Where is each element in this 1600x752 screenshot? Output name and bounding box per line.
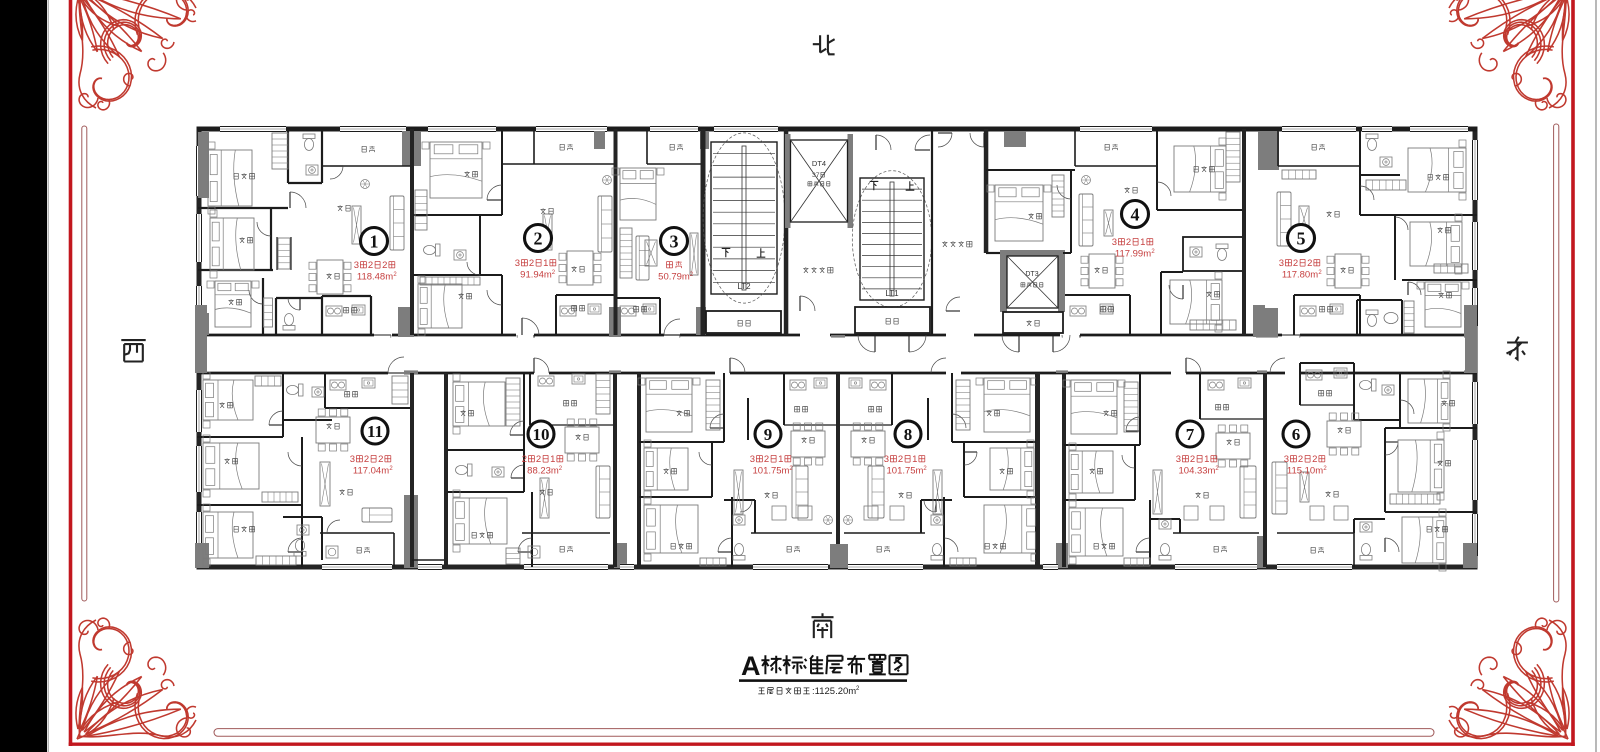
svg-text:1: 1 (1140, 237, 1145, 248)
svg-text:2: 2 (764, 454, 769, 465)
svg-text:104.33m: 104.33m (1179, 466, 1216, 477)
svg-text:11: 11 (367, 422, 383, 441)
svg-text:2: 2 (536, 454, 541, 465)
svg-text::1125.20m: :1125.20m (812, 686, 856, 697)
svg-text:3: 3 (670, 232, 679, 252)
svg-text:9: 9 (764, 425, 773, 444)
svg-text:3: 3 (884, 454, 889, 465)
svg-text:1: 1 (912, 454, 917, 465)
svg-text:88.23m: 88.23m (527, 466, 559, 477)
svg-text:2: 2 (529, 258, 534, 269)
svg-text:1: 1 (550, 454, 555, 465)
svg-text:A: A (741, 651, 761, 681)
svg-text:2: 2 (364, 454, 369, 465)
svg-text:1: 1 (543, 258, 548, 269)
svg-text:2: 2 (898, 454, 903, 465)
svg-text:3: 3 (1279, 258, 1284, 269)
svg-text:2: 2 (1312, 454, 1317, 465)
svg-text:117.99m: 117.99m (1115, 249, 1151, 260)
svg-text:5: 5 (1297, 229, 1306, 249)
svg-text:10: 10 (533, 425, 550, 444)
svg-text:2: 2 (1293, 258, 1298, 269)
svg-text:1: 1 (778, 454, 783, 465)
svg-text:DT4: DT4 (812, 159, 826, 168)
svg-text:1: 1 (370, 232, 379, 252)
svg-text:2: 2 (1190, 454, 1195, 465)
svg-text:117.04m: 117.04m (353, 466, 389, 477)
svg-text:101.75m: 101.75m (753, 466, 790, 477)
svg-text:3: 3 (515, 258, 520, 269)
svg-text:2: 2 (1126, 237, 1131, 248)
svg-text:3: 3 (350, 454, 355, 465)
svg-text:101.75m: 101.75m (887, 466, 924, 477)
svg-text:3: 3 (1112, 237, 1117, 248)
svg-text:3: 3 (1284, 454, 1289, 465)
svg-text:4: 4 (1131, 205, 1140, 225)
svg-text:LT1: LT1 (885, 289, 899, 298)
svg-text:91.94m: 91.94m (520, 270, 552, 281)
svg-text:6: 6 (1292, 425, 1301, 444)
svg-text:3: 3 (750, 454, 755, 465)
svg-text:2: 2 (534, 229, 543, 249)
svg-text:2: 2 (1298, 454, 1303, 465)
svg-text:2: 2 (382, 260, 387, 271)
svg-text:50.79m: 50.79m (658, 272, 690, 283)
svg-text:2: 2 (368, 260, 373, 271)
svg-text:2: 2 (378, 454, 383, 465)
svg-text:2: 2 (522, 454, 527, 465)
svg-text:37: 37 (812, 172, 820, 179)
svg-text:1: 1 (1204, 454, 1209, 465)
svg-text:118.48m: 118.48m (357, 272, 393, 283)
svg-text:2: 2 (1307, 258, 1312, 269)
svg-text:LT2: LT2 (737, 282, 751, 291)
svg-text:8: 8 (904, 425, 913, 444)
svg-text:117.80m: 117.80m (1282, 270, 1318, 281)
svg-text:7: 7 (1186, 425, 1195, 444)
svg-text:3: 3 (1176, 454, 1181, 465)
svg-text:3: 3 (354, 260, 359, 271)
svg-text:DT3: DT3 (1025, 271, 1038, 278)
svg-text:115.10m: 115.10m (1287, 466, 1323, 477)
